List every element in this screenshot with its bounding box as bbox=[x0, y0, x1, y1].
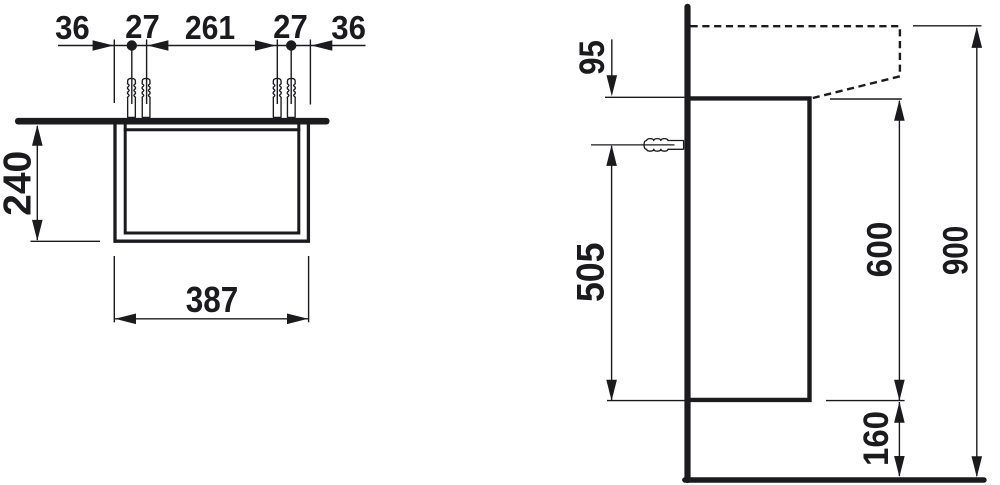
svg-text:240: 240 bbox=[0, 151, 40, 216]
svg-text:160: 160 bbox=[857, 411, 896, 466]
svg-text:95: 95 bbox=[573, 40, 612, 75]
svg-text:387: 387 bbox=[186, 280, 239, 321]
svg-text:27: 27 bbox=[125, 8, 160, 45]
svg-text:600: 600 bbox=[861, 222, 900, 278]
svg-text:900: 900 bbox=[936, 226, 975, 275]
svg-text:27: 27 bbox=[273, 8, 308, 45]
svg-text:261: 261 bbox=[185, 9, 235, 47]
svg-text:36: 36 bbox=[55, 9, 90, 46]
svg-text:505: 505 bbox=[568, 243, 612, 303]
svg-text:36: 36 bbox=[331, 9, 366, 46]
